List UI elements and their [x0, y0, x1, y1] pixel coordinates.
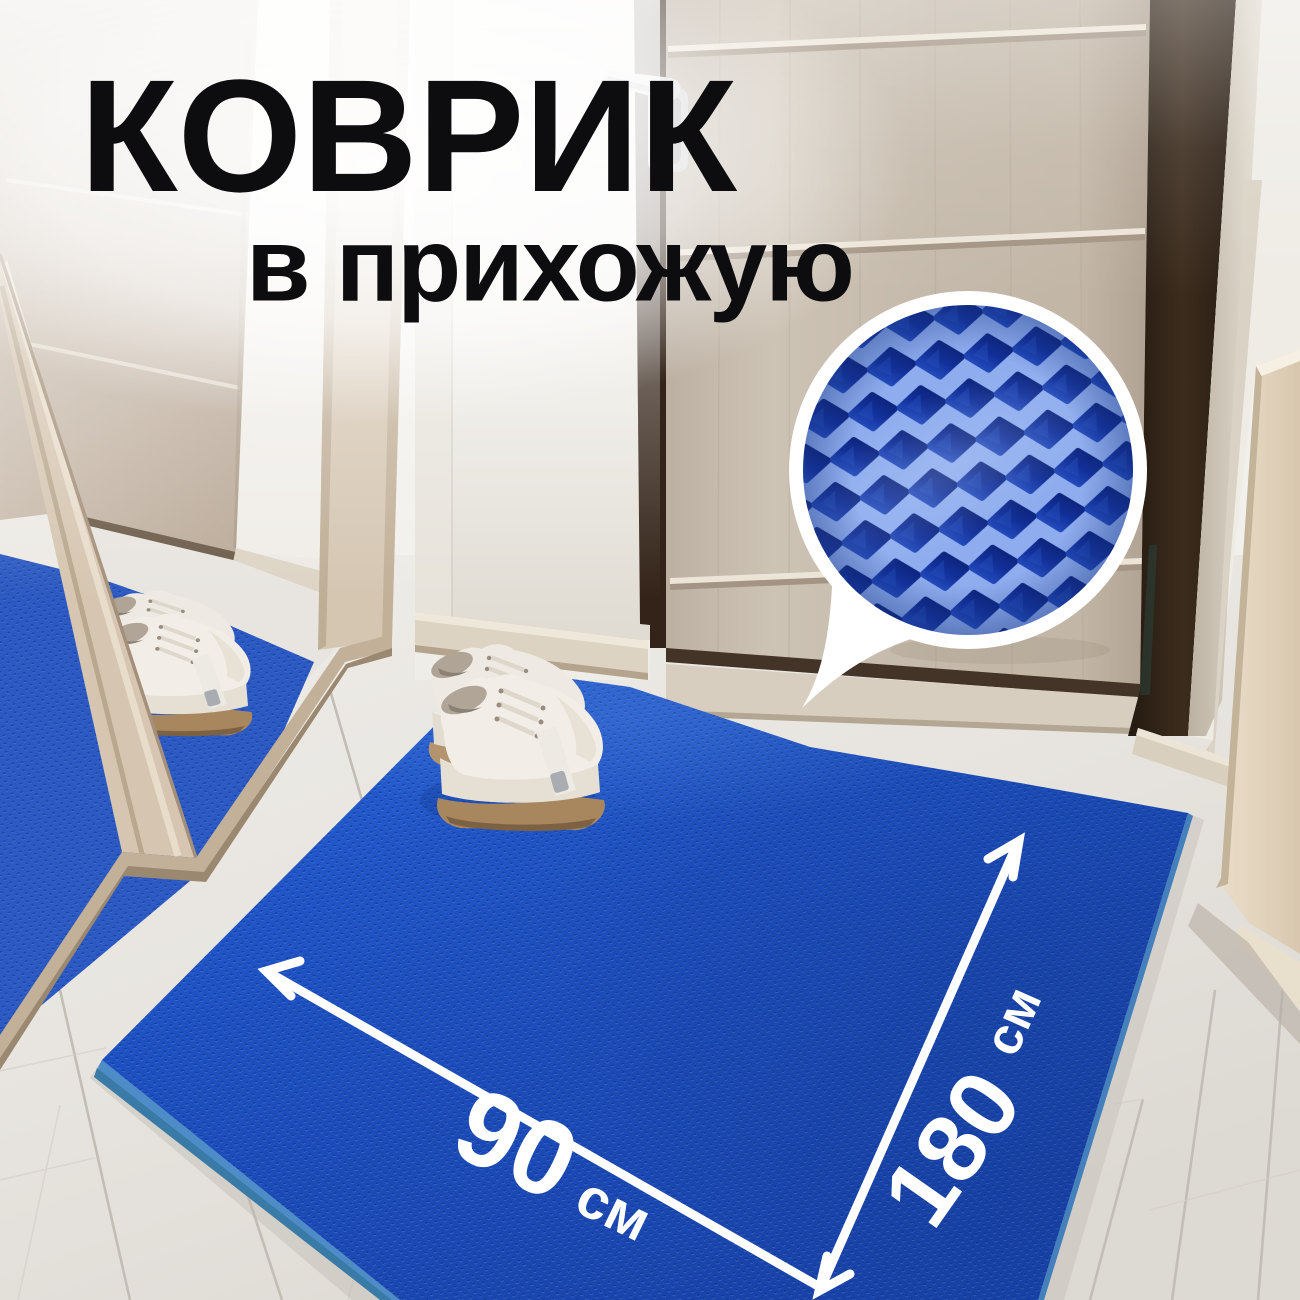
svg-text:в прихожую: в прихожую — [246, 207, 853, 324]
svg-text:КОВРИК: КОВРИК — [80, 46, 737, 225]
